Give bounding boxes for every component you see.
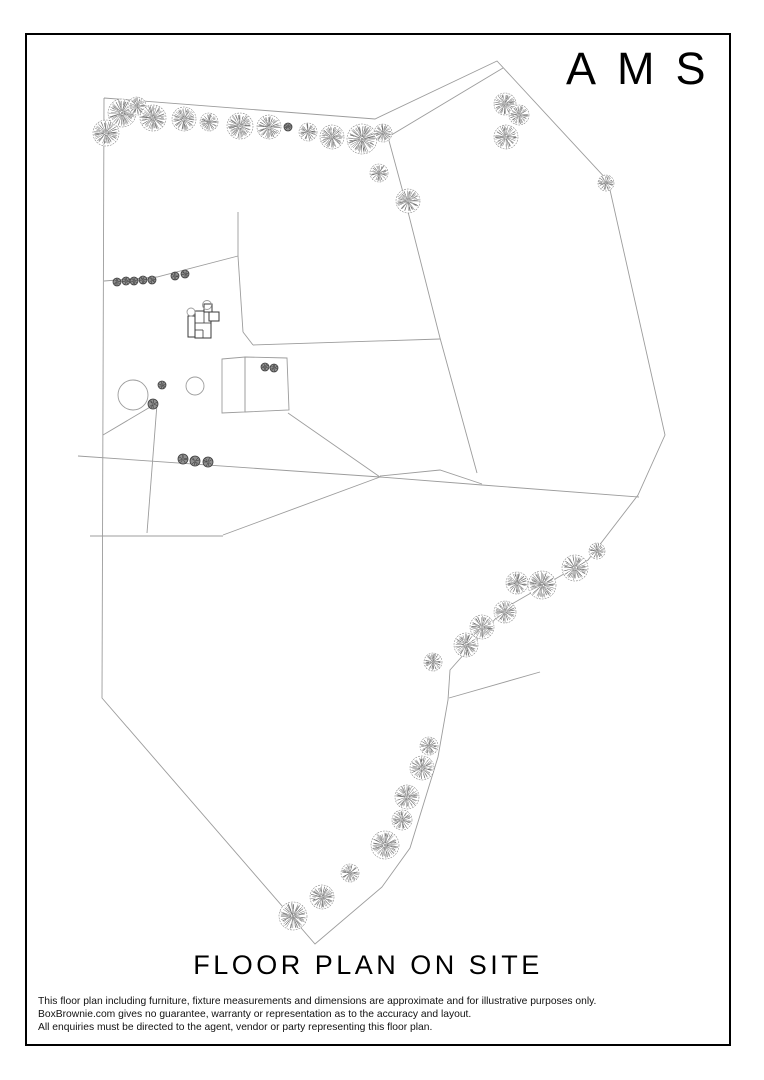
- tree-icon: [341, 864, 359, 882]
- bush-icon: [203, 457, 213, 467]
- boundary-and-fence-lines: [78, 61, 665, 944]
- bush-symbols: [113, 123, 292, 467]
- tree-icon: [371, 831, 399, 859]
- tree-icon: [410, 756, 434, 780]
- tree-icon: [374, 124, 392, 142]
- bush-icon: [270, 364, 278, 372]
- bush-icon: [261, 363, 269, 371]
- tree-icon: [562, 555, 588, 581]
- tree-icon: [347, 124, 377, 154]
- site-plan-drawing: [0, 0, 764, 1080]
- plan-title: FLOOR PLAN ON SITE: [0, 950, 736, 981]
- tree-icon: [172, 107, 196, 131]
- tree-icon: [494, 125, 518, 149]
- tree-icon: [589, 543, 605, 559]
- bush-icon: [113, 278, 121, 286]
- bush-icon: [178, 454, 188, 464]
- bush-icon: [158, 381, 166, 389]
- disclaimer-line-3: All enquiries must be directed to the ag…: [38, 1021, 598, 1034]
- tree-icon: [320, 125, 344, 149]
- tree-icon: [494, 601, 516, 623]
- tree-icon: [140, 105, 166, 131]
- tree-icon: [299, 123, 317, 141]
- tree-icon: [227, 113, 253, 139]
- bush-icon: [181, 270, 189, 278]
- disclaimer-line-2: BoxBrownie.com gives no guarantee, warra…: [38, 1008, 598, 1021]
- disclaimer-line-1: This floor plan including furniture, fix…: [38, 995, 598, 1008]
- tree-icon: [509, 105, 529, 125]
- bush-icon: [139, 276, 147, 284]
- tree-icon: [420, 737, 438, 755]
- tree-icon: [396, 189, 420, 213]
- tree-icon: [392, 810, 412, 830]
- tree-icon: [598, 175, 614, 191]
- tree-icon: [395, 785, 419, 809]
- tree-icon: [200, 113, 218, 131]
- bush-icon: [130, 277, 138, 285]
- building-footprint: [187, 301, 219, 339]
- disclaimer-text: This floor plan including furniture, fix…: [38, 995, 598, 1034]
- floor-plan-page: AMS FLOOR PLAN ON SITE This floor plan i…: [0, 0, 764, 1080]
- tree-icon: [506, 572, 528, 594]
- tree-icon: [424, 653, 442, 671]
- bush-icon: [148, 399, 158, 409]
- ams-logo: AMS: [566, 46, 727, 91]
- tree-icon: [528, 571, 556, 599]
- bush-icon: [284, 123, 292, 131]
- tree-symbols: [93, 93, 614, 930]
- tree-icon: [310, 885, 334, 909]
- tree-icon: [470, 615, 494, 639]
- bush-icon: [122, 277, 130, 285]
- bush-icon: [171, 272, 179, 280]
- tree-icon: [370, 164, 388, 182]
- tree-icon: [279, 902, 307, 930]
- bush-icon: [190, 456, 200, 466]
- bush-icon: [148, 276, 156, 284]
- tree-icon: [257, 115, 281, 139]
